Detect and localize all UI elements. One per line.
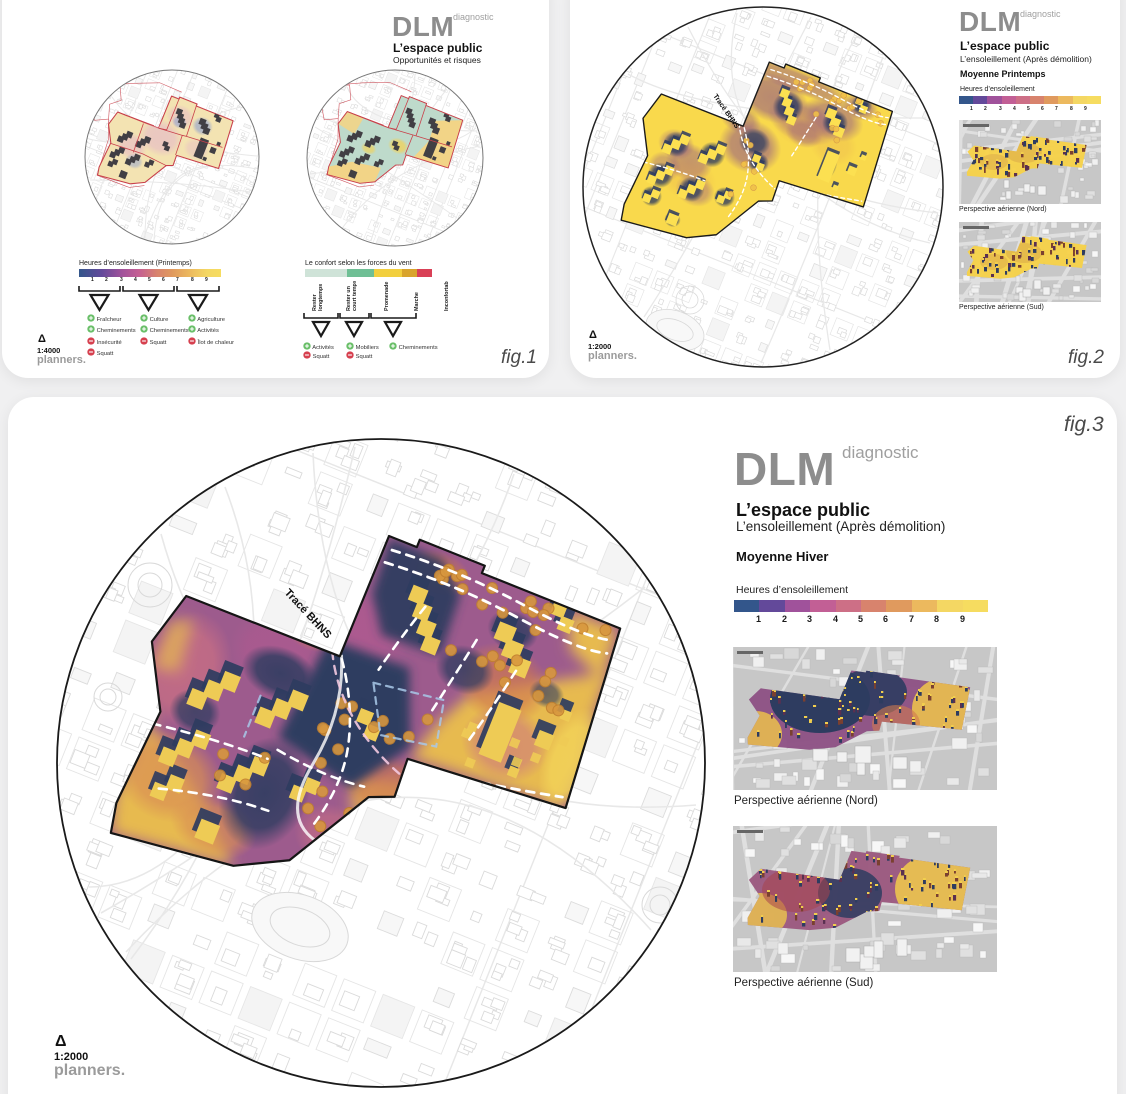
svg-text:Inconfortable: Inconfortable: [444, 281, 450, 311]
svg-text:longtemps: longtemps: [318, 284, 324, 311]
svg-text:Promenade: Promenade: [384, 282, 390, 311]
svg-text:court temps: court temps: [352, 281, 358, 311]
